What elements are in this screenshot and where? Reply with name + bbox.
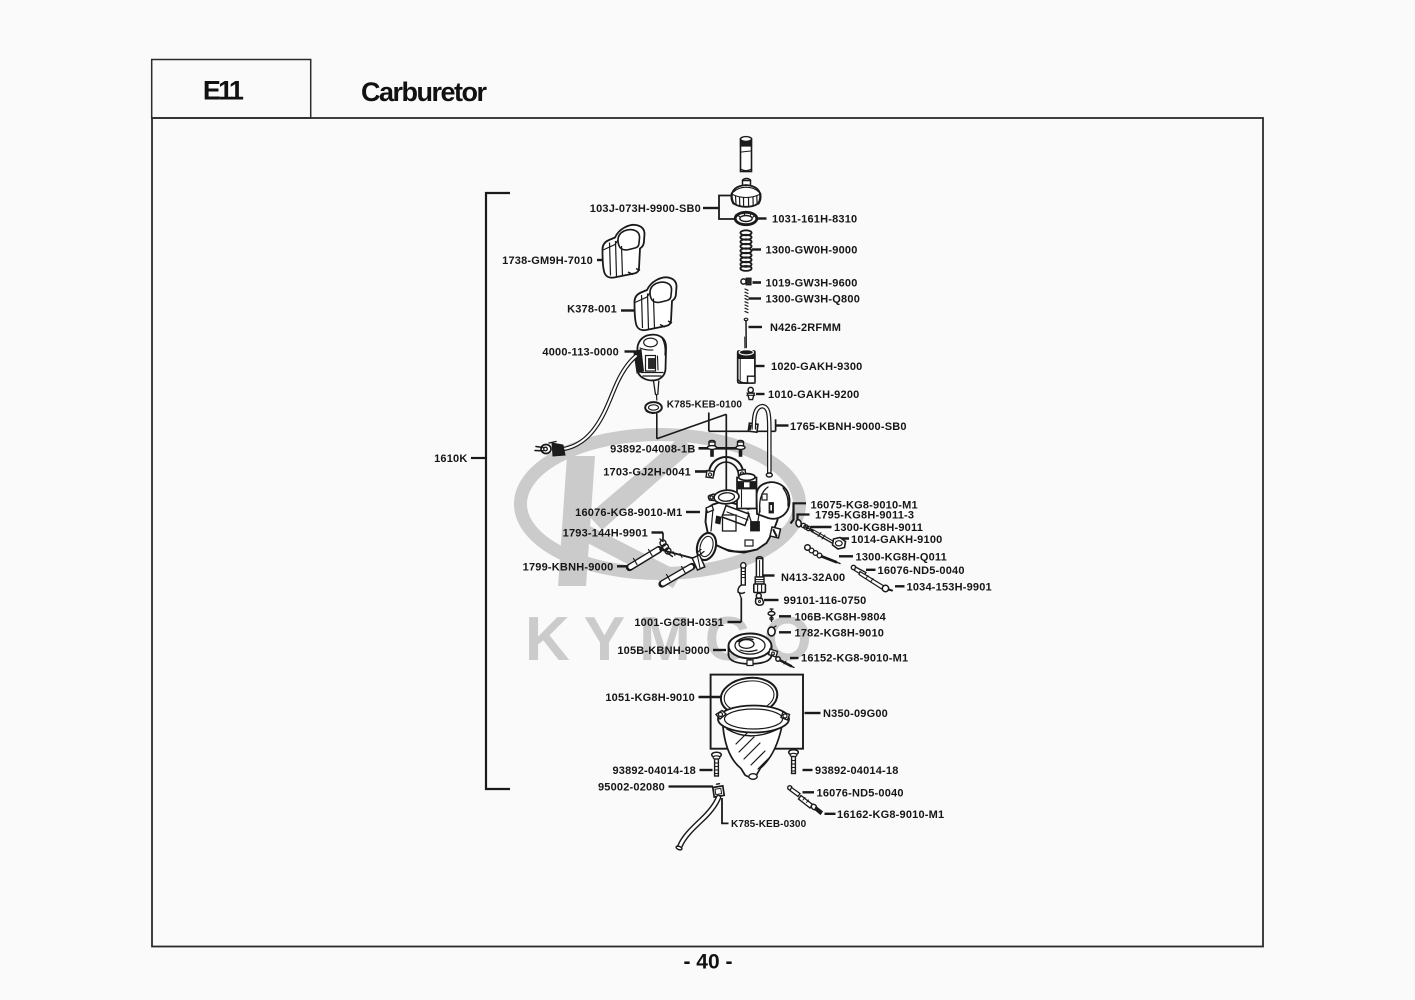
svg-text:Carburetor: Carburetor [361,77,488,107]
svg-text:1010-GAKH-9200: 1010-GAKH-9200 [768,389,859,401]
svg-text:1795-KG8H-9011-3: 1795-KG8H-9011-3 [815,510,914,522]
svg-text:93892-04014-18: 93892-04014-18 [815,765,899,777]
svg-text:1300-KG8H-9011: 1300-KG8H-9011 [834,522,923,534]
svg-text:1001-GC8H-0351: 1001-GC8H-0351 [634,617,724,629]
svg-text:K785-KEB-0100: K785-KEB-0100 [667,400,743,411]
svg-text:1300-KG8H-Q011: 1300-KG8H-Q011 [856,551,947,563]
svg-text:1031-161H-8310: 1031-161H-8310 [772,214,857,226]
svg-text:1020-GAKH-9300: 1020-GAKH-9300 [771,361,862,373]
svg-text:1014-GAKH-9100: 1014-GAKH-9100 [851,534,942,546]
svg-text:1765-KBNH-9000-SB0: 1765-KBNH-9000-SB0 [790,421,907,433]
svg-text:16076-ND5-0040: 16076-ND5-0040 [817,787,904,799]
svg-text:103J-073H-9900-SB0: 103J-073H-9900-SB0 [590,203,701,215]
svg-text:93892-04014-18: 93892-04014-18 [612,765,696,777]
svg-text:N413-32A00: N413-32A00 [781,572,845,584]
svg-text:- 40 -: - 40 - [683,951,732,974]
svg-text:99101-116-0750: 99101-116-0750 [784,595,867,607]
svg-text:K378-001: K378-001 [567,304,617,316]
svg-text:4000-113-0000: 4000-113-0000 [542,347,619,359]
svg-text:1738-GM9H-7010: 1738-GM9H-7010 [502,255,593,267]
svg-text:K785-KEB-0300: K785-KEB-0300 [731,819,807,830]
svg-text:E11: E11 [203,76,244,106]
svg-text:1051-KG8H-9010: 1051-KG8H-9010 [605,692,695,704]
svg-text:16162-KG8-9010-M1: 16162-KG8-9010-M1 [837,809,944,821]
svg-text:1793-144H-9901: 1793-144H-9901 [563,528,648,540]
svg-text:16152-KG8-9010-M1: 16152-KG8-9010-M1 [801,652,908,664]
svg-text:1703-GJ2H-0041: 1703-GJ2H-0041 [603,467,691,479]
svg-text:1300-GW3H-Q800: 1300-GW3H-Q800 [766,294,861,306]
svg-text:N426-2RFMM: N426-2RFMM [770,322,841,334]
svg-text:1799-KBNH-9000: 1799-KBNH-9000 [523,562,614,574]
svg-text:1782-KG8H-9010: 1782-KG8H-9010 [795,627,885,639]
svg-text:1300-GW0H-9000: 1300-GW0H-9000 [766,245,858,257]
svg-text:93892-04008-1B: 93892-04008-1B [610,443,695,455]
svg-text:106B-KG8H-9804: 106B-KG8H-9804 [795,611,887,623]
svg-text:16076-KG8-9010-M1: 16076-KG8-9010-M1 [575,507,682,519]
svg-text:1034-153H-9901: 1034-153H-9901 [907,581,992,593]
svg-text:1019-GW3H-9600: 1019-GW3H-9600 [766,278,858,290]
svg-text:1610K: 1610K [434,453,467,465]
svg-text:N350-09G00: N350-09G00 [823,708,888,720]
svg-text:95002-02080: 95002-02080 [598,782,665,794]
svg-text:105B-KBNH-9000: 105B-KBNH-9000 [617,645,710,657]
svg-text:16076-ND5-0040: 16076-ND5-0040 [878,565,965,577]
